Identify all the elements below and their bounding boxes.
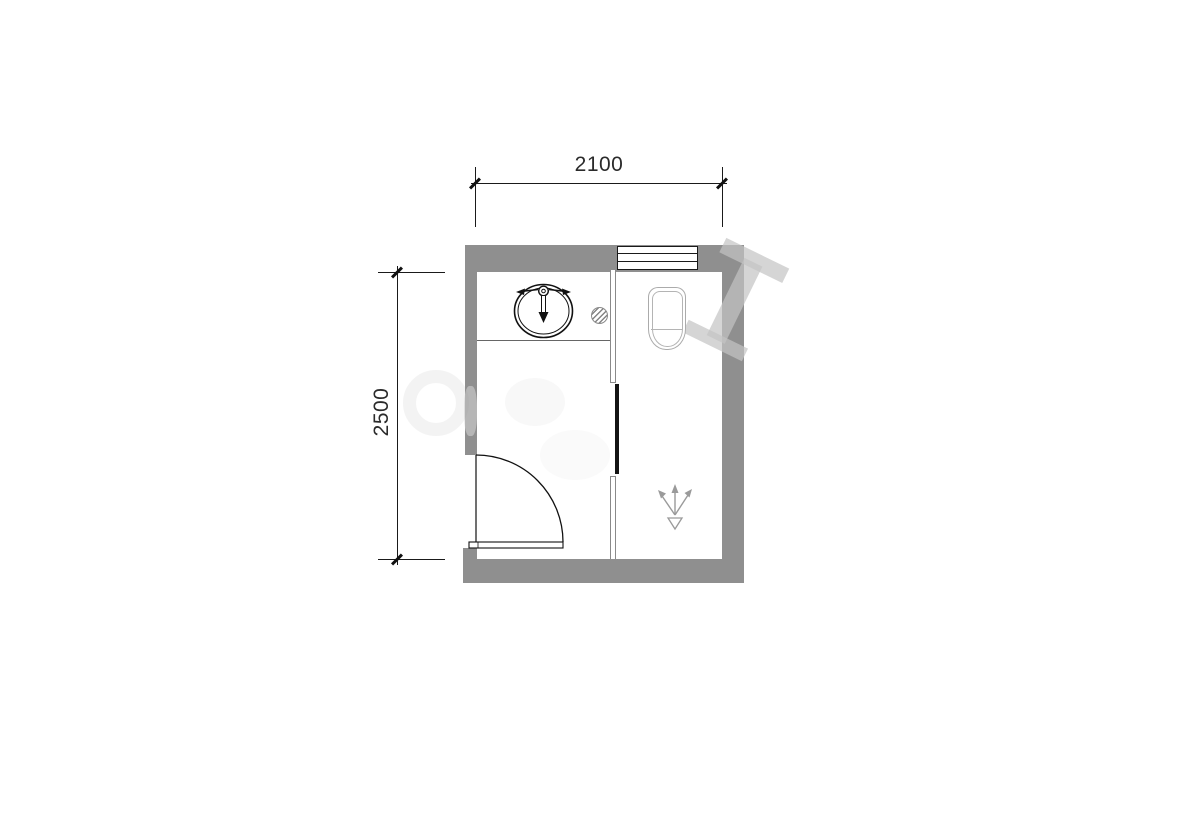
- partition-upper: [610, 270, 616, 383]
- extension-line: [475, 167, 476, 227]
- partition-lower: [610, 476, 616, 559]
- shower-screen: [615, 384, 619, 474]
- sink-faucet: [516, 286, 571, 323]
- bathroom-floor-plan: 2100 2500: [0, 0, 1198, 831]
- floor-drain-icon: [591, 307, 608, 324]
- toilet-rim: [652, 291, 683, 347]
- window-icon: [617, 246, 698, 270]
- watermark-stem: [707, 258, 763, 344]
- extension-line: [722, 167, 723, 227]
- dimension-line: [397, 266, 398, 565]
- watermark-blob: [403, 370, 469, 436]
- wall-top: [465, 245, 744, 272]
- extension-line: [378, 272, 445, 273]
- window-pane-line: [618, 253, 697, 254]
- extension-line: [378, 559, 445, 560]
- sink-icon: [508, 278, 580, 342]
- door-swing-arc: [476, 455, 563, 542]
- watermark-blob: [505, 378, 565, 426]
- dimension-line: [471, 183, 727, 184]
- window-pane-line: [618, 261, 697, 262]
- toilet-icon: [648, 287, 686, 350]
- dimension-label-height: 2500: [371, 373, 393, 451]
- toilet-divider: [651, 329, 683, 330]
- dimension-label-width: 2100: [560, 154, 638, 176]
- door-leaf: [469, 542, 563, 548]
- wall-bottom: [463, 559, 744, 583]
- door-icon: [458, 450, 570, 552]
- shower-spray-icon: [652, 482, 698, 532]
